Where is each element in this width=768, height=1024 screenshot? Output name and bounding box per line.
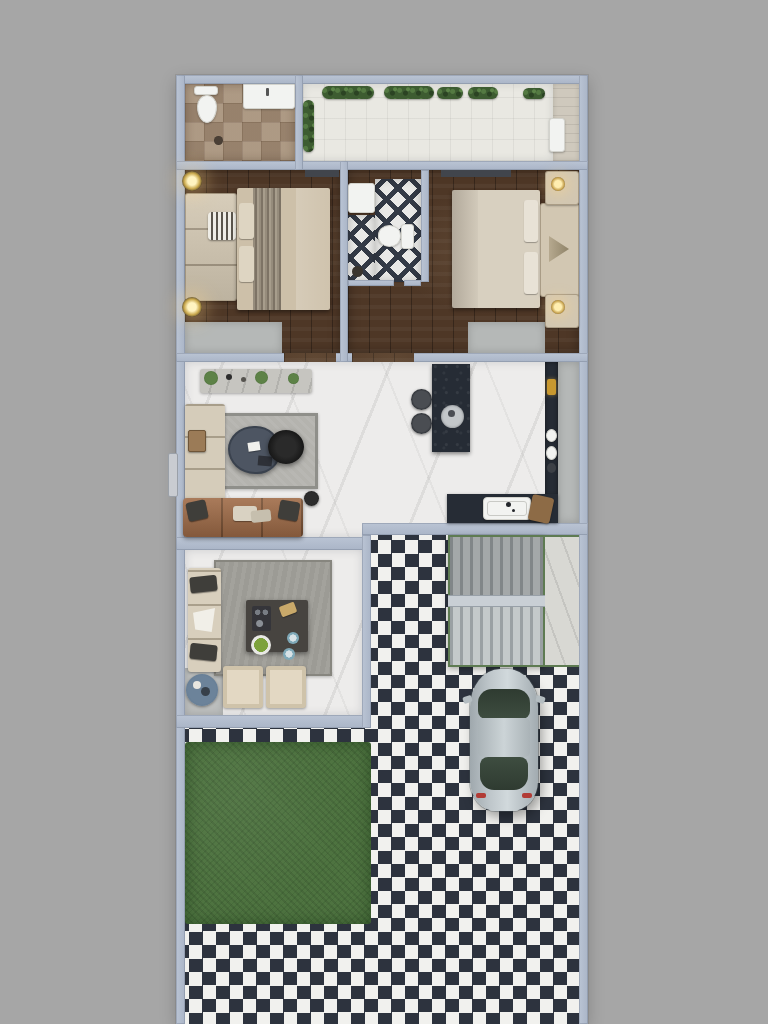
coffee-table-papers-1 bbox=[247, 441, 260, 452]
wall-dining-driveway bbox=[362, 535, 371, 728]
balcony-mat bbox=[549, 118, 565, 152]
window-bedroom-right bbox=[441, 170, 511, 177]
bar-stool-2 bbox=[411, 413, 432, 434]
ensuite-toilet-bowl bbox=[378, 225, 401, 247]
dining-chair-1 bbox=[223, 666, 263, 708]
bed-left bbox=[237, 188, 330, 310]
car-rear-window bbox=[480, 757, 528, 790]
console-plant-1 bbox=[204, 371, 218, 385]
island-tray-item bbox=[448, 410, 455, 417]
wall-ensuite-right bbox=[421, 170, 429, 282]
sofa-pillow-left bbox=[185, 499, 209, 522]
bench-pillow-bottom bbox=[189, 643, 218, 662]
headboard-bench-left bbox=[185, 193, 237, 301]
small-black-stool bbox=[304, 491, 319, 506]
car-taillight-right bbox=[522, 793, 532, 798]
hedge-planter-left bbox=[303, 100, 314, 152]
bed-right-pillow-1 bbox=[524, 200, 538, 242]
bench-pillow-top bbox=[189, 575, 218, 594]
toilet-tank bbox=[194, 86, 218, 95]
wood-side-table bbox=[188, 430, 206, 452]
wall-bath-balcony bbox=[295, 75, 303, 170]
bed-right-duvet-fold bbox=[452, 190, 478, 308]
wall-ensuite-bottom-a bbox=[348, 280, 394, 286]
bed-left-runner bbox=[253, 188, 281, 310]
blue-table-item-2 bbox=[201, 687, 210, 696]
stair-landing bbox=[448, 595, 545, 607]
wall-between-bedrooms bbox=[340, 161, 348, 362]
car-windshield bbox=[478, 689, 530, 719]
hedge-planter-3 bbox=[437, 87, 463, 99]
canopy-side-panel bbox=[545, 535, 579, 667]
bed-right bbox=[452, 190, 540, 308]
hedge-planter-2 bbox=[384, 86, 434, 99]
counter-item-1 bbox=[546, 429, 557, 442]
wall-living-driveway bbox=[362, 523, 588, 535]
console-plant-3 bbox=[288, 373, 299, 384]
wall-ensuite-bottom-b bbox=[404, 280, 421, 286]
ensuite-toilet-tank bbox=[401, 224, 414, 249]
counter-item-2 bbox=[546, 446, 557, 460]
table-plate-2 bbox=[283, 648, 295, 660]
wall-outer-top bbox=[176, 75, 588, 84]
door-opening-bedroom-right bbox=[352, 353, 414, 362]
console-decor-1 bbox=[226, 374, 232, 380]
entry-door bbox=[168, 453, 178, 497]
sofa-pillow-mid-2 bbox=[250, 509, 271, 523]
wall-outer-right bbox=[579, 75, 588, 1024]
counter-gold-item bbox=[547, 379, 556, 395]
bed-left-sheet bbox=[296, 188, 330, 310]
car-taillight-left bbox=[476, 793, 486, 798]
bed-left-pillow-2 bbox=[239, 246, 254, 282]
floor-plan-canvas bbox=[0, 0, 768, 1024]
console-decor-2 bbox=[241, 377, 246, 382]
hedge-planter-1 bbox=[322, 86, 374, 99]
vanity-faucet bbox=[266, 88, 269, 96]
ensuite-sink bbox=[348, 183, 375, 213]
hedge-planter-4 bbox=[468, 87, 498, 99]
table-serving-tray bbox=[252, 606, 271, 631]
coffee-table-papers-2 bbox=[258, 455, 273, 466]
sofa-pillow-right bbox=[278, 499, 301, 521]
wall-dining-yard bbox=[176, 715, 371, 728]
closet-mat-left bbox=[185, 322, 282, 353]
bed-right-pillow-2 bbox=[524, 252, 538, 294]
closet-mat-right bbox=[468, 322, 545, 353]
counter-kettle bbox=[547, 463, 556, 473]
dining-chair-2 bbox=[266, 666, 306, 708]
window-bedroom-left bbox=[305, 170, 339, 177]
white-corner-sofa bbox=[185, 404, 225, 500]
sink-inner-line bbox=[487, 501, 527, 516]
kitchen-sink bbox=[483, 497, 531, 520]
screenshot-root: { "scene": { "type": "3d-floor-plan-top-… bbox=[0, 0, 768, 1024]
ensuite-floor-item bbox=[352, 266, 363, 277]
ceiling-spotlight-2 bbox=[182, 297, 202, 317]
wall-below-balcony bbox=[176, 161, 588, 170]
table-salad-bowl bbox=[251, 635, 271, 655]
parked-car bbox=[470, 669, 538, 811]
canopy-upper-shade bbox=[450, 537, 543, 595]
hedge-planter-5 bbox=[523, 88, 545, 99]
table-lamp-top bbox=[551, 177, 565, 191]
table-lamp-bottom bbox=[551, 300, 565, 314]
blue-table-item-1 bbox=[193, 681, 201, 689]
striped-pillow bbox=[208, 212, 236, 240]
door-opening-bedroom-left bbox=[284, 353, 336, 362]
table-plate-1 bbox=[287, 632, 299, 644]
kitchen-side-strip bbox=[558, 362, 579, 523]
wall-living-dining bbox=[176, 537, 371, 550]
lawn-square bbox=[185, 742, 371, 924]
floor-drain bbox=[214, 136, 223, 145]
vanity-sink bbox=[243, 84, 295, 109]
fur-pouf bbox=[268, 430, 304, 464]
console-plant-2 bbox=[255, 371, 268, 384]
car-roof bbox=[478, 718, 530, 757]
bed-left-pillow-1 bbox=[239, 203, 254, 239]
bar-stool-1 bbox=[411, 389, 432, 410]
ceiling-spotlight-1 bbox=[182, 171, 202, 191]
